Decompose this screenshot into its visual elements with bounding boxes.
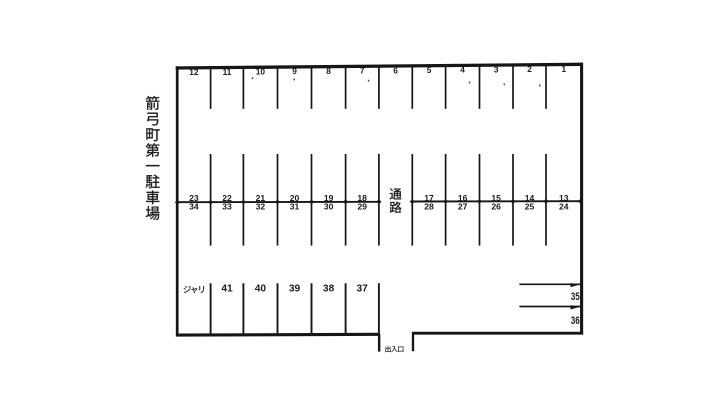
svg-text:2: 2	[527, 64, 532, 74]
svg-text:29: 29	[357, 202, 367, 212]
svg-text:6: 6	[393, 65, 398, 75]
svg-text:25: 25	[525, 202, 535, 212]
svg-text:7: 7	[360, 66, 365, 76]
svg-text:10: 10	[256, 67, 266, 77]
svg-text:9: 9	[292, 66, 297, 76]
svg-text:35: 35	[571, 291, 580, 304]
svg-text:36: 36	[571, 315, 580, 328]
svg-text:8: 8	[326, 66, 331, 76]
svg-text:37: 37	[357, 283, 369, 294]
svg-text:5: 5	[427, 65, 432, 75]
svg-text:24: 24	[559, 202, 569, 212]
svg-text:3: 3	[494, 64, 499, 74]
svg-text:40: 40	[255, 283, 267, 294]
svg-text:11: 11	[223, 67, 232, 77]
svg-text:41: 41	[221, 283, 233, 294]
svg-text:34: 34	[189, 202, 199, 212]
svg-text:30: 30	[324, 202, 334, 212]
svg-text:12: 12	[189, 67, 199, 77]
svg-text:32: 32	[256, 202, 266, 212]
svg-text:28: 28	[424, 202, 434, 212]
svg-text:26: 26	[491, 202, 501, 212]
svg-text:39: 39	[289, 283, 301, 294]
svg-text:31: 31	[290, 202, 300, 212]
svg-text:4: 4	[460, 65, 465, 75]
svg-text:27: 27	[458, 202, 468, 212]
svg-text:38: 38	[323, 283, 335, 294]
svg-text:33: 33	[222, 202, 232, 212]
svg-text:1: 1	[561, 64, 566, 74]
